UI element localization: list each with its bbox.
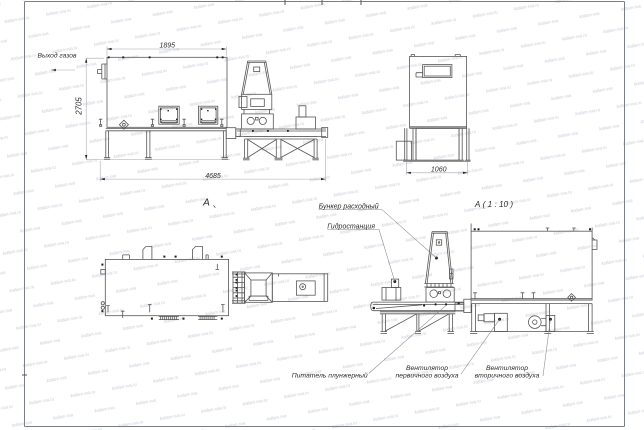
svg-text:А ( 1 : 10 ): А ( 1 : 10 ) <box>474 200 513 209</box>
svg-text:Бункер расходный: Бункер расходный <box>319 202 379 210</box>
svg-text:1895: 1895 <box>160 43 176 50</box>
svg-text:Питатель плунжерный: Питатель плунжерный <box>292 371 368 379</box>
svg-text:Гидростанция: Гидростанция <box>327 222 375 230</box>
svg-text:вторичного воздуха: вторичного воздуха <box>475 371 540 379</box>
svg-text:2705: 2705 <box>75 97 84 116</box>
svg-text:А: А <box>202 198 210 209</box>
svg-text:4685: 4685 <box>205 173 221 180</box>
svg-text:первичного воздуха: первичного воздуха <box>396 371 459 379</box>
svg-text:Вентилятор: Вентилятор <box>486 365 528 372</box>
svg-text:Вентилятор: Вентилятор <box>406 365 448 372</box>
svg-text:Выход газов: Выход газов <box>38 52 77 60</box>
svg-text:1060: 1060 <box>431 167 447 174</box>
